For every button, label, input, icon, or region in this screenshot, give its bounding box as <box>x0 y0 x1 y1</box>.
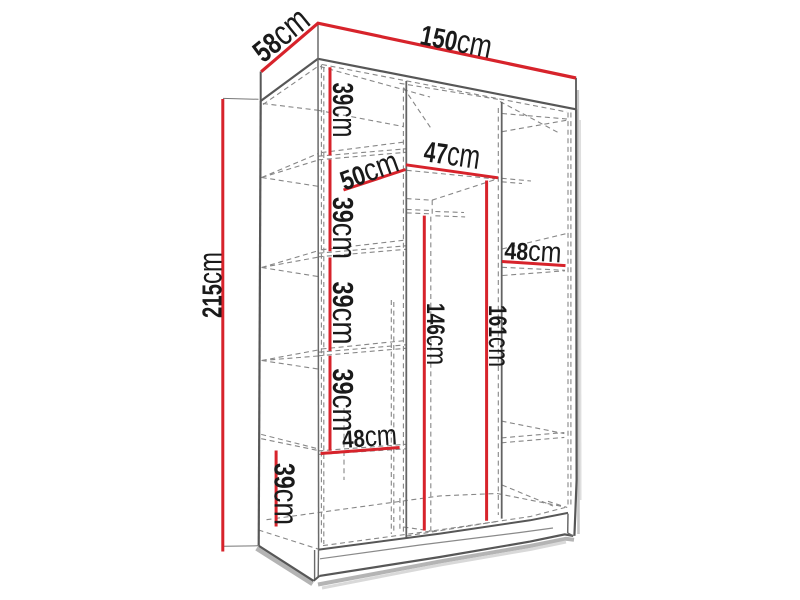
svg-text:146cm: 146cm <box>420 303 453 365</box>
svg-text:39cm: 39cm <box>325 83 363 138</box>
svg-text:39cm: 39cm <box>325 197 363 259</box>
svg-text:215cm: 215cm <box>192 252 229 318</box>
svg-text:48cm: 48cm <box>504 234 563 270</box>
svg-text:161cm: 161cm <box>482 305 515 367</box>
svg-text:39cm: 39cm <box>325 282 363 345</box>
svg-text:39cm: 39cm <box>266 463 304 525</box>
svg-text:39cm: 39cm <box>325 369 363 432</box>
